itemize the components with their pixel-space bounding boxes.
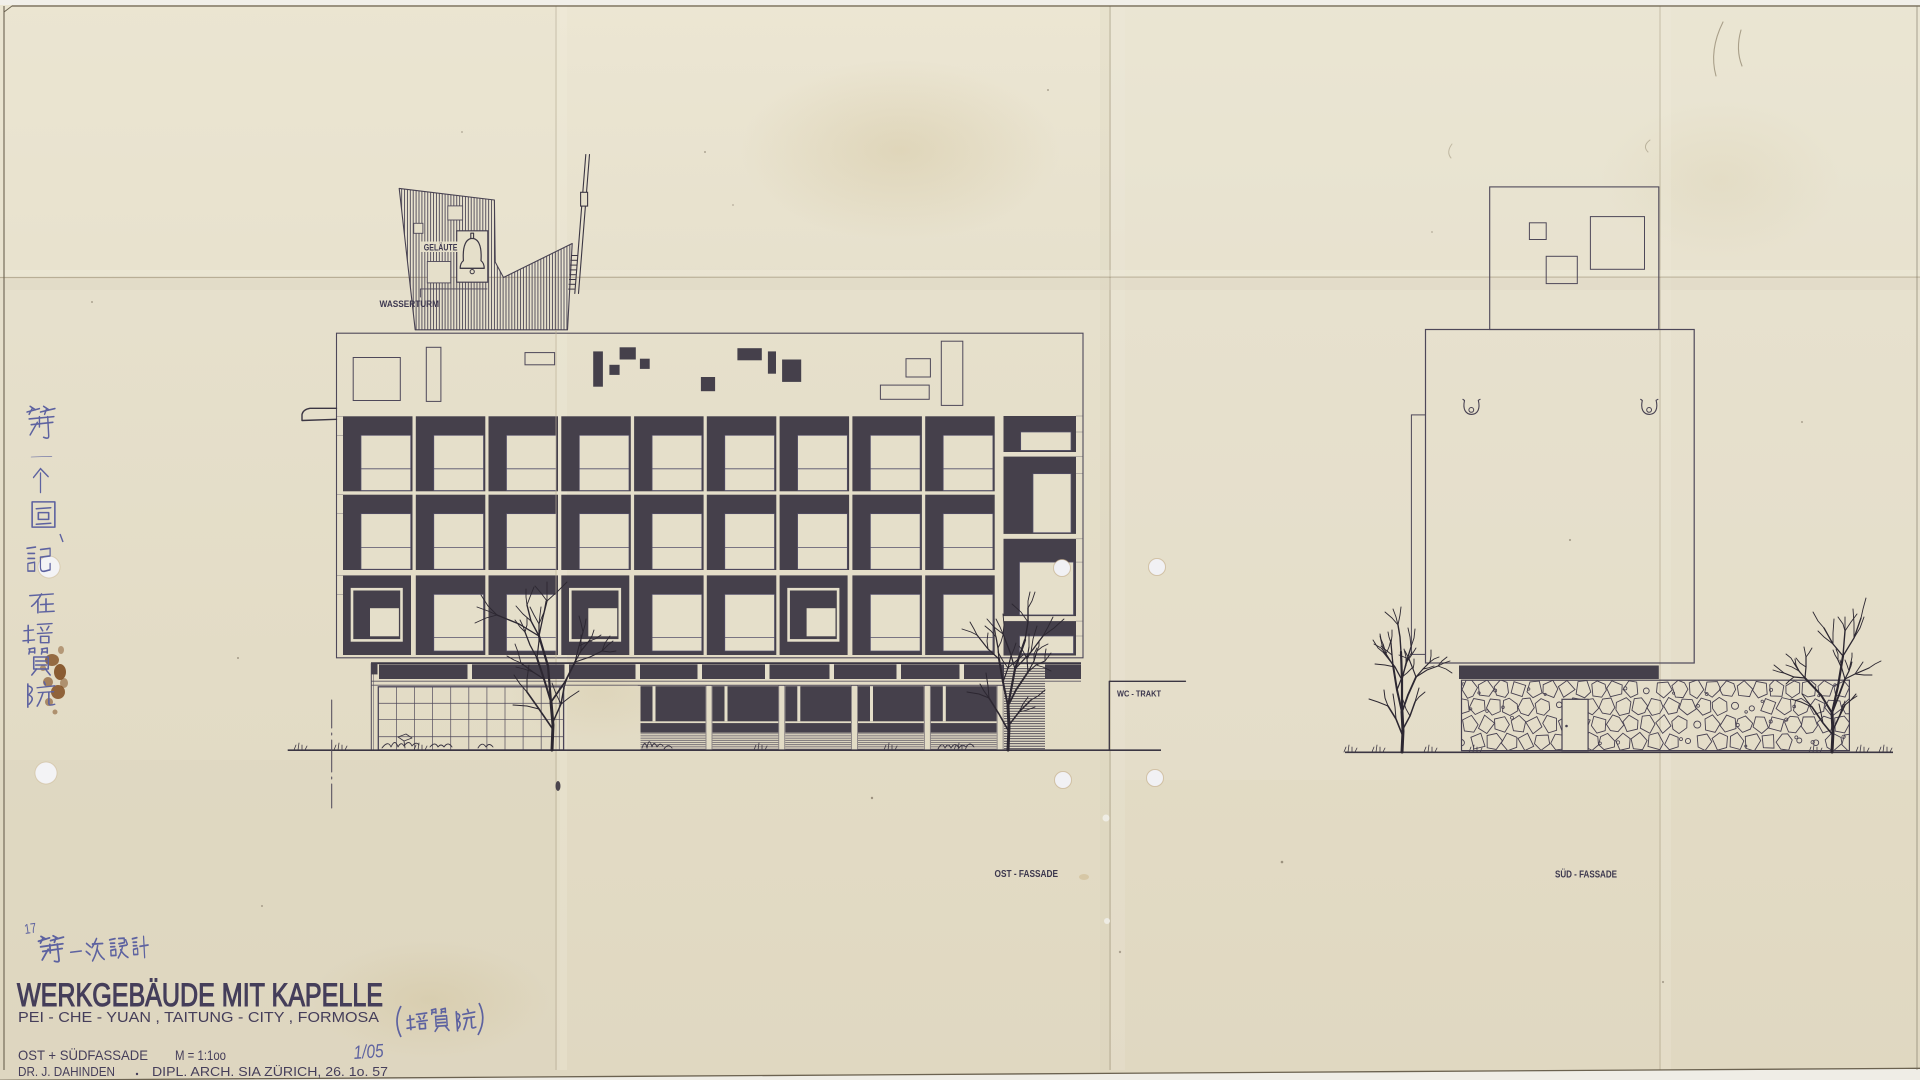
svg-text:DIPL. ARCH. SIA ZÜRICH, 26. 1: DIPL. ARCH. SIA ZÜRICH, 26. 1o. 57 [152, 1064, 388, 1079]
svg-text:OST - FASSADE: OST - FASSADE [995, 869, 1059, 880]
svg-text:1/05: 1/05 [353, 1041, 385, 1064]
svg-text:M = 1:1oo: M = 1:1oo [175, 1048, 226, 1063]
svg-text:WASSERTURM: WASSERTURM [380, 299, 440, 309]
svg-text:17: 17 [23, 919, 37, 937]
svg-text:WC - TRAKT: WC - TRAKT [1117, 689, 1162, 699]
svg-text:DR. J. DAHINDEN: DR. J. DAHINDEN [18, 1064, 115, 1079]
svg-text:SÜD - FASSADE: SÜD - FASSADE [1555, 867, 1617, 880]
svg-text:WERKGEBÄUDE MIT KAPELLE: WERKGEBÄUDE MIT KAPELLE [17, 977, 383, 1013]
svg-text:PEI - CHE - YUAN , TAITU: PEI - CHE - YUAN , TAITUNG - CITY , FORM… [18, 1010, 379, 1026]
svg-text:GELÄUTE: GELÄUTE [424, 242, 458, 252]
svg-text:OST + SÜDFASSADE: OST + SÜDFASSADE [18, 1046, 148, 1063]
